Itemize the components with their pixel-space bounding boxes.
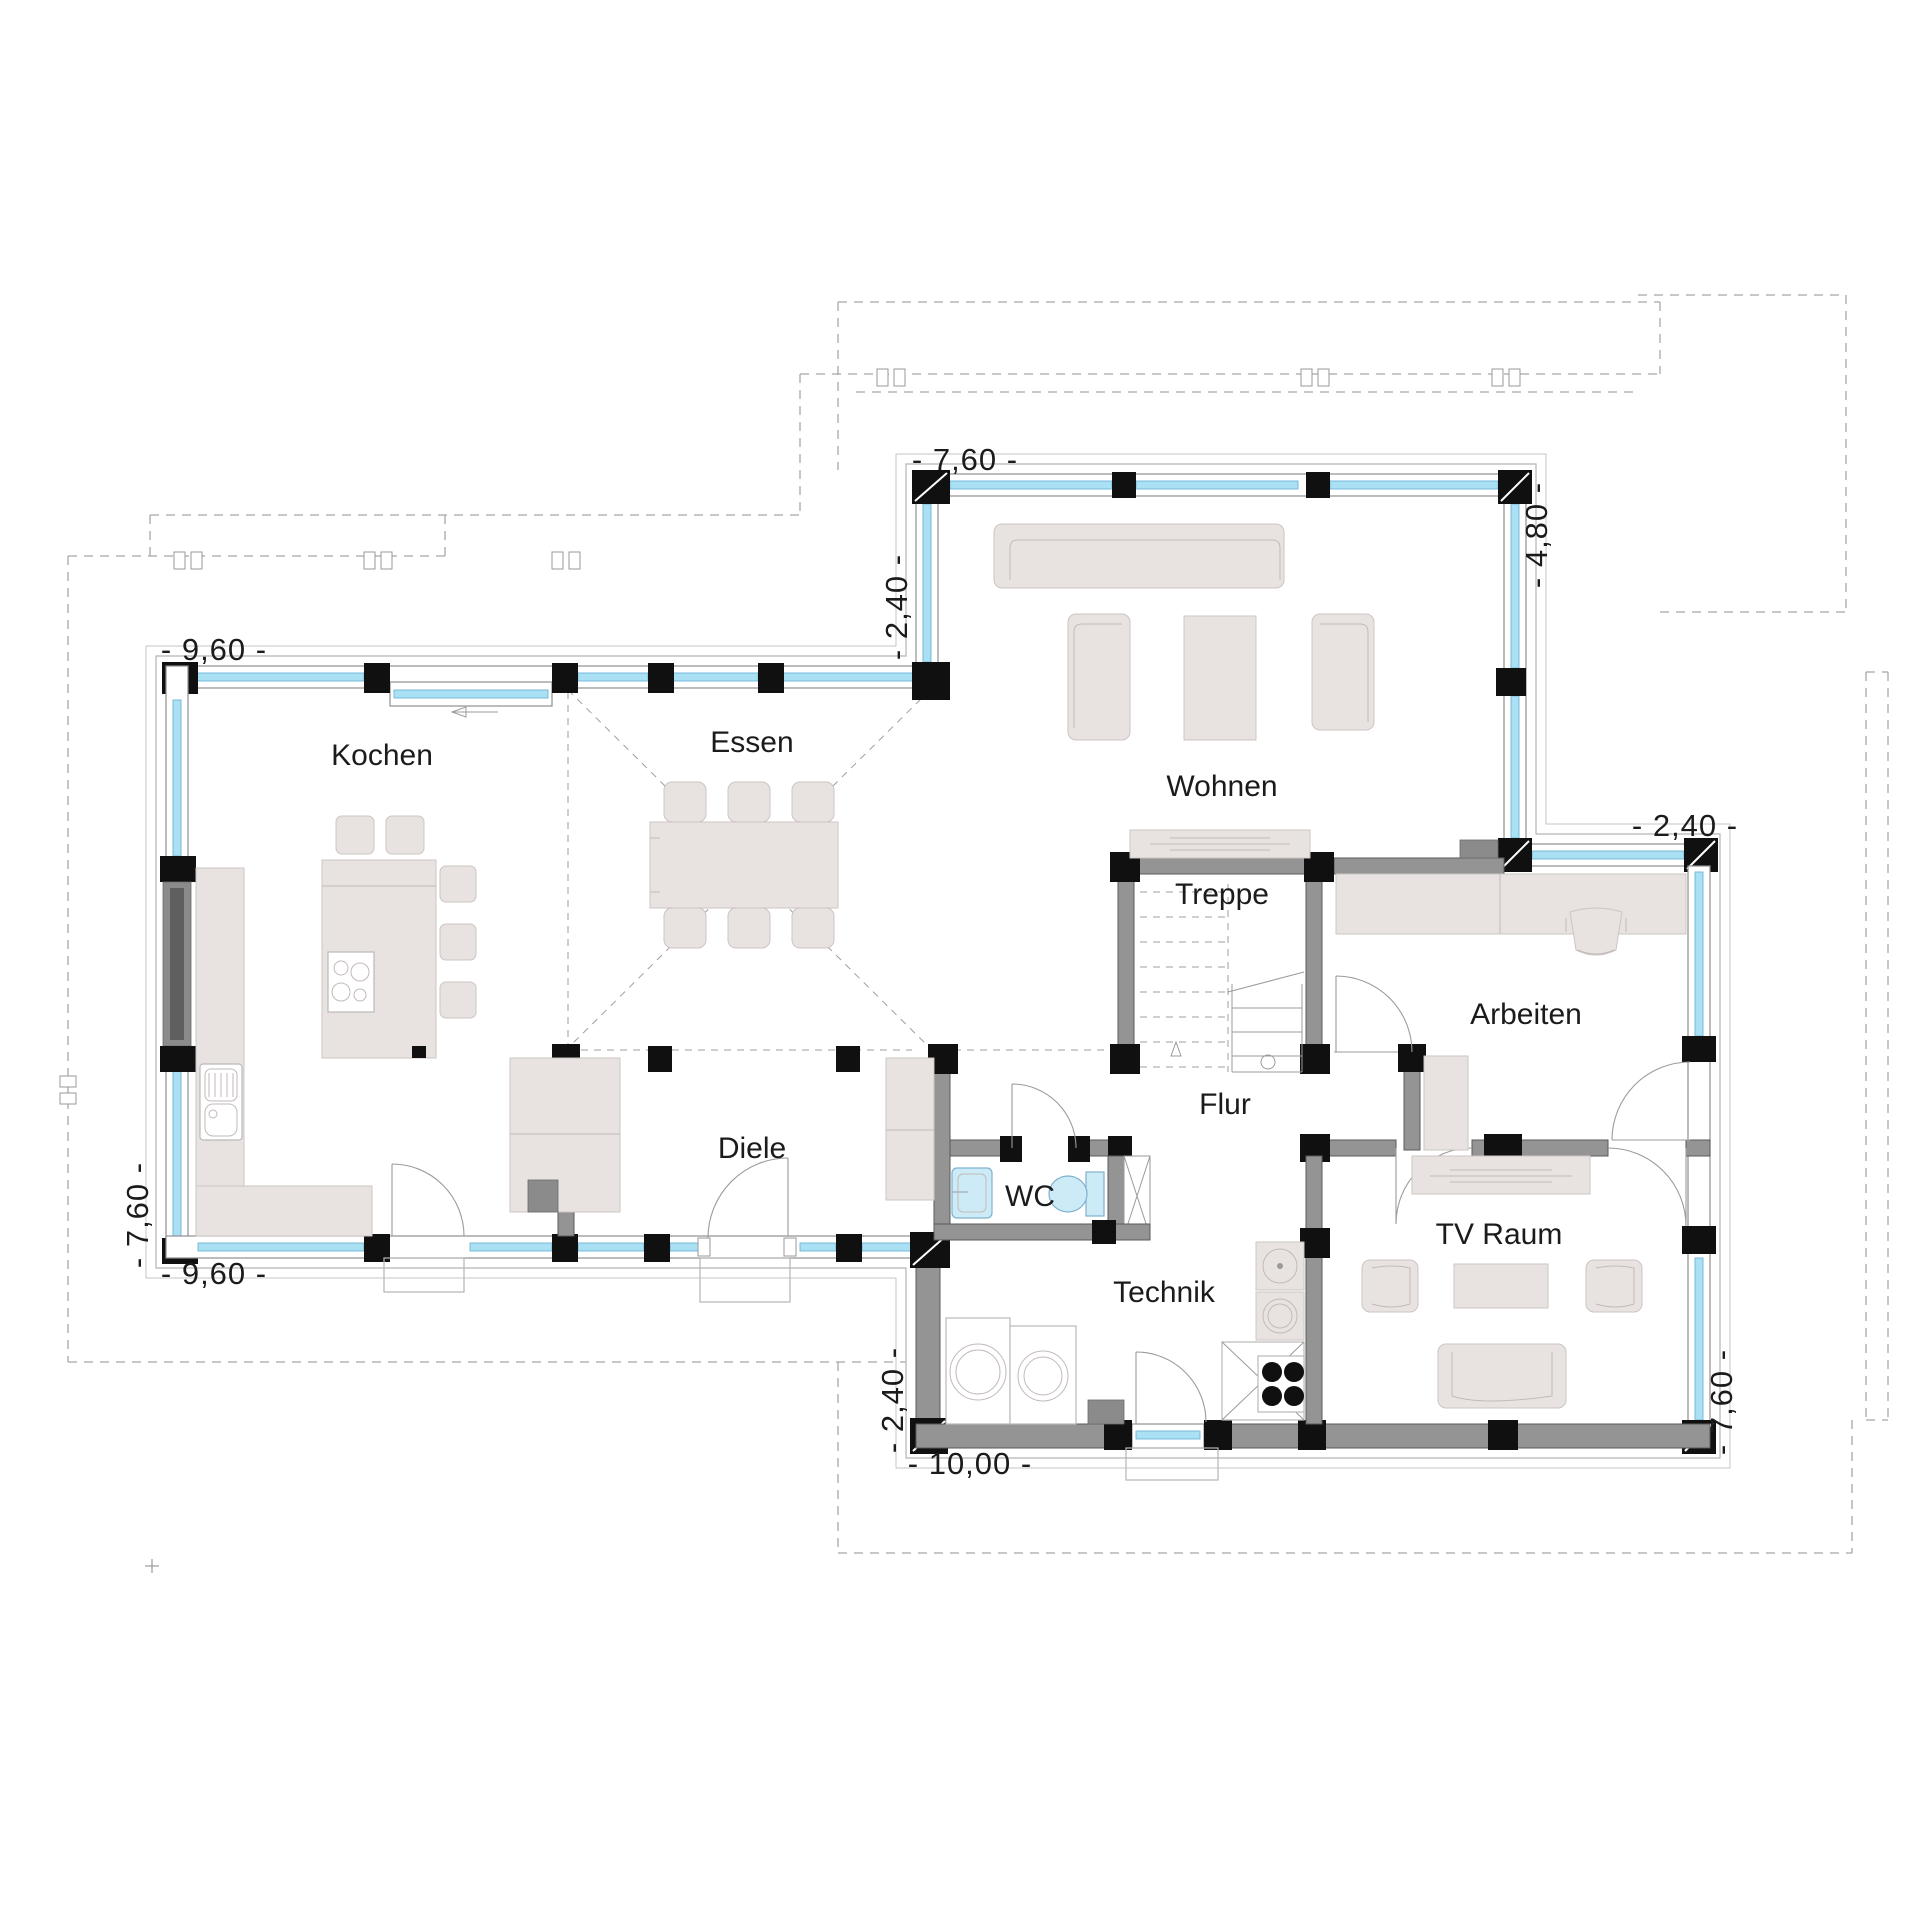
entrance-door (1136, 1352, 1206, 1424)
desk (1336, 874, 1686, 934)
terrace-step-2 (700, 1258, 790, 1302)
dining-chair (664, 782, 706, 822)
room-label-arbeiten: Arbeiten (1470, 998, 1582, 1031)
sofa (994, 524, 1284, 588)
dining-chair (792, 782, 834, 822)
wc-toilet-tank (1086, 1172, 1104, 1216)
dim-kochen-top: - 9,60 - (161, 632, 267, 667)
dining-furniture (650, 782, 838, 948)
room-label-essen: Essen (710, 726, 793, 759)
bar-stool (440, 924, 476, 960)
entrance-step (1126, 1448, 1218, 1480)
staircase (1140, 884, 1304, 1072)
room-label-kochen: Kochen (331, 739, 433, 772)
terrace-door-right (1612, 1062, 1690, 1140)
cooktop (328, 952, 374, 1012)
room-label-flur: Flur (1199, 1088, 1251, 1121)
floor-plan-canvas: Kochen Essen Wohnen Treppe Flur Arbeiten… (0, 0, 1920, 1920)
tv-room-furniture (1362, 1156, 1642, 1408)
dining-chair (664, 908, 706, 948)
terrace-door-kochen (392, 1164, 464, 1236)
dim-technik-left: - 2,40 - (875, 1347, 910, 1453)
room-labels: Kochen Essen Wohnen Treppe Flur Arbeiten… (331, 726, 1582, 1309)
coffee-table (1184, 616, 1256, 740)
living-room-furniture (994, 524, 1374, 858)
room-label-technik: Technik (1113, 1276, 1216, 1309)
stair-direction-arrow (1171, 1042, 1181, 1056)
slider-direction-arrow (452, 707, 498, 717)
technik-fixtures (946, 1242, 1304, 1424)
room-label-tv-raum: TV Raum (1436, 1218, 1563, 1251)
dining-table (650, 822, 838, 908)
dim-tv-right: - 7,60 - (1704, 1349, 1739, 1455)
floor-plan-drawing: Kochen Essen Wohnen Treppe Flur Arbeiten… (0, 0, 1920, 1920)
armchair (1068, 614, 1130, 740)
tv-sofa (1438, 1344, 1566, 1408)
hall-cabinet (510, 1058, 620, 1212)
bar-stool (440, 866, 476, 902)
bar-stool (440, 982, 476, 1018)
room-label-diele: Diele (718, 1132, 786, 1165)
room-label-wc: WC (1005, 1180, 1055, 1213)
dining-chair (728, 782, 770, 822)
dining-chair (728, 908, 770, 948)
terrace-door-diele (708, 1158, 788, 1238)
tv-table (1454, 1264, 1548, 1308)
hall-cabinet-2 (886, 1058, 934, 1200)
armchair (1312, 614, 1374, 730)
dim-technik-bottom: - 10,00 - (908, 1446, 1032, 1481)
survey-cross (145, 1559, 159, 1573)
dim-wohnen-right: - 4,80 - (1519, 482, 1554, 588)
dim-kochen-left: - 7,60 - (120, 1162, 155, 1268)
desk-chair (1570, 908, 1622, 955)
kitchen-furniture (196, 816, 476, 1236)
room-label-treppe: Treppe (1175, 878, 1269, 911)
bookshelf (1424, 1056, 1468, 1150)
room-label-wohnen: Wohnen (1166, 770, 1277, 803)
dining-chair (792, 908, 834, 948)
dim-kochen-bottom: - 9,60 - (161, 1256, 267, 1291)
arbeiten-door (1336, 976, 1412, 1052)
bar-stool (386, 816, 424, 854)
bar-stool (336, 816, 374, 854)
tv-room-door-right (1608, 1148, 1686, 1226)
dim-arbeiten-top: - 2,40 - (1632, 808, 1738, 843)
dryer (1010, 1326, 1076, 1424)
terrace-step-1 (384, 1258, 464, 1292)
tv-sideboard (1412, 1156, 1590, 1194)
dim-wohnen-left: - 2,40 - (879, 554, 914, 660)
dim-wohnen-top: - 7,60 - (912, 442, 1018, 477)
